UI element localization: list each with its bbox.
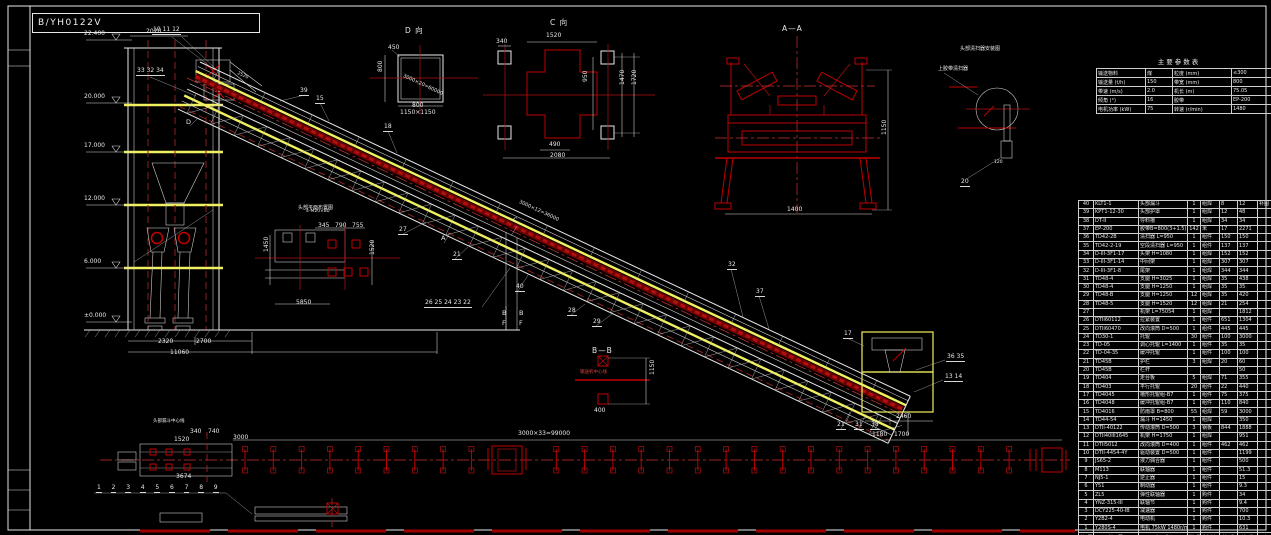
bom-cell: 13 <box>1079 425 1094 433</box>
bom-cell: 35 <box>1220 292 1238 300</box>
bom-cell: 844 <box>1220 425 1238 433</box>
part-number-callout: 8 <box>198 485 204 493</box>
callout-label: 21 <box>836 422 846 430</box>
bom-cell <box>1258 433 1271 441</box>
bom-cell <box>1220 308 1238 316</box>
bom-cell: 1 <box>1188 350 1201 358</box>
bom-cell <box>1258 458 1271 466</box>
bom-cell: 24 <box>1079 333 1094 341</box>
bom-cell: 1 <box>1188 474 1201 482</box>
bom-cell: Y2B2-4 <box>1094 516 1139 524</box>
dim-label: 头部漏斗中心线 <box>153 420 185 425</box>
bom-cell: 1 <box>1188 308 1201 316</box>
elevation-label: 6.000 <box>84 259 101 265</box>
bom-row: 7NJ5-1逆止器1组件15 <box>1079 474 1271 482</box>
inclined-conveyor <box>173 60 914 446</box>
bom-cell: 防雨罩 B=800 <box>1139 408 1188 416</box>
bom-cell <box>1258 491 1271 499</box>
bom-cell: 137 <box>1220 242 1238 250</box>
bom-cell: 700 <box>1238 507 1258 515</box>
bom-cell: 组焊 <box>1201 292 1220 300</box>
param-cell: EP-200 <box>1232 96 1271 105</box>
bom-cell: 1 <box>1188 217 1201 225</box>
param-cell: 2.0 <box>1146 87 1173 96</box>
bom-cell: DTII60470 <box>1094 325 1139 333</box>
bom-cell: 12 <box>1079 433 1094 441</box>
bom-cell: ZL5 <box>1094 491 1139 499</box>
bom-cell: 150 <box>1238 234 1258 242</box>
bom-cell: D-III-3F1-8 <box>1094 267 1139 275</box>
callout-label: 15 <box>315 96 325 104</box>
bom-cell <box>1258 416 1271 424</box>
bom-cell <box>1258 449 1271 457</box>
bom-cell: 组焊 <box>1201 308 1220 316</box>
bom-cell: 头部漏斗 <box>1139 201 1188 209</box>
param-cell: 电机功率 (kW) <box>1097 105 1146 114</box>
bom-cell: 355 <box>1238 375 1258 383</box>
callout-label: 31 <box>854 422 864 430</box>
callout-label: 13 14 <box>944 374 963 382</box>
bom-cell <box>1220 416 1238 424</box>
bom-cell: 护栏 <box>1139 358 1188 366</box>
bom-cell: 59 <box>1220 408 1238 416</box>
bom-cell: 米 <box>1201 225 1220 233</box>
bom-cell: 组焊 <box>1201 358 1220 366</box>
bom-cell: JS65-2 <box>1094 458 1139 466</box>
bom-cell: TD48-4 <box>1094 283 1139 291</box>
bom-cell <box>1258 275 1271 283</box>
bom-cell: 631 <box>1238 524 1258 532</box>
bom-cell: 尾架 <box>1139 267 1188 275</box>
part-number-callout: 5 <box>154 485 160 493</box>
dim-label: 400 <box>594 408 605 414</box>
bom-cell: 3 <box>1079 507 1094 515</box>
bom-cell: 组件 <box>1201 242 1220 250</box>
bom-cell: 1 <box>1188 400 1201 408</box>
bom-cell: 5 <box>1079 491 1094 499</box>
bom-row: 31TD48-4支腿 H=30251组焊35438 <box>1079 275 1271 283</box>
bom-cell: TD4045 <box>1094 391 1139 399</box>
bom-cell: 100 <box>1220 350 1238 358</box>
bom-row: 13DTII-40122传动滚筒 D=5003钢板8441888 <box>1079 425 1271 433</box>
param-cell: 75 <box>1146 105 1173 114</box>
bom-cell: 平行托辊 <box>1139 383 1188 391</box>
bom-cell: 头架 H=1080 <box>1139 250 1188 258</box>
param-cell: 胶带 <box>1173 96 1232 105</box>
bom-cell: 钢板 <box>1201 425 1220 433</box>
param-cell: 带速 (m/s) <box>1097 87 1146 96</box>
bom-cell <box>1094 308 1139 316</box>
part-number-callout: 1 <box>96 485 102 493</box>
bom-cell <box>1258 466 1271 474</box>
bom-cell: 12 <box>1220 209 1238 217</box>
bom-cell: 29 <box>1079 292 1094 300</box>
bom-cell: 组件 <box>1201 383 1220 391</box>
part-number-callout: 4 <box>140 485 146 493</box>
bom-cell: DT-II <box>1094 217 1139 225</box>
bom-cell: TD45B <box>1094 358 1139 366</box>
param-cell: 带宽 (mm) <box>1173 78 1232 87</box>
a-a-section <box>715 36 892 214</box>
bom-cell: 3000 <box>1238 333 1258 341</box>
dim-label: 1520 <box>546 33 561 39</box>
d-view <box>370 45 478 115</box>
bom-cell: 胶带B=800(3+1.5) <box>1139 225 1188 233</box>
param-cell: 800 <box>1232 78 1271 87</box>
bom-cell: KPT1-12-30 <box>1094 209 1139 217</box>
bom-cell: 1 <box>1188 449 1201 457</box>
bom-cell: D-III-3F1-14 <box>1094 259 1139 267</box>
bom-cell: 375 <box>1238 391 1258 399</box>
bom-cell: 支腿 H=1520 <box>1139 300 1188 308</box>
bom-cell: 344 <box>1220 267 1238 275</box>
bom-row: 32D-III-3F1-8尾架1组焊344344 <box>1079 267 1271 275</box>
callout-leaders <box>94 37 945 514</box>
bom-cell: 逆止器 <box>1139 474 1188 482</box>
bom-cell: 16 <box>1079 400 1094 408</box>
bom-row: 36TD42-2B清扫器 L=9501组件150150 <box>1079 234 1271 242</box>
part-number-callout: 7 <box>184 485 190 493</box>
bom-cell <box>1258 524 1271 532</box>
elevation-label: 22.400 <box>84 31 105 37</box>
bom-cell: 40 <box>1079 201 1094 209</box>
bom-cell: 19 <box>1079 375 1094 383</box>
bom-cell <box>1220 449 1238 457</box>
bom-row: 30TD48-4支腿 H=12501组焊3535 <box>1079 283 1271 291</box>
bom-cell: 1 <box>1188 516 1201 524</box>
callout-label: 40 <box>515 284 525 292</box>
bom-cell <box>1258 250 1271 258</box>
bom-cell: 1 <box>1188 234 1201 242</box>
bom-cell: 34 <box>1079 250 1094 258</box>
bom-cell: 440 <box>1238 383 1258 391</box>
bom-cell: TD48-B <box>1094 292 1139 300</box>
bom-cell: TD404 <box>1094 375 1139 383</box>
dim-label: 950 <box>583 71 589 82</box>
bom-cell <box>1258 391 1271 399</box>
dim-label: 1520 <box>370 240 376 255</box>
dim-label: 120 <box>994 161 1003 166</box>
bom-cell: 137 <box>1238 242 1258 250</box>
bom-cell: 组件 <box>1201 474 1220 482</box>
bom-cell: 12 <box>1188 292 1201 300</box>
bom-row: 3DCY225-40-IB减速器1购件700 <box>1079 507 1271 515</box>
callout-label: 28 <box>567 308 577 316</box>
bom-cell: 组件 <box>1201 458 1220 466</box>
bom-cell <box>1258 217 1271 225</box>
bom-cell: TD45B <box>1094 366 1139 374</box>
bom-cell: 导料槽 <box>1139 217 1188 225</box>
tail-plan-detail <box>160 498 347 530</box>
dim-label: 2700 <box>196 339 211 345</box>
bom-cell: DTII5012 <box>1094 441 1139 449</box>
bom-cell: TD42-2B <box>1094 234 1139 242</box>
c-view <box>483 42 655 158</box>
bom-cell <box>1220 466 1238 474</box>
param-cell: 倾角 (°) <box>1097 96 1146 105</box>
elevation-label: 20.000 <box>84 94 105 100</box>
callout-label: 37 <box>755 289 765 297</box>
drawing-number: B/YH0122V <box>33 18 102 28</box>
bom-cell: TD30-1 <box>1094 333 1139 341</box>
bom-cell: 100 <box>1238 350 1258 358</box>
bom-cell: 18 <box>1079 383 1094 391</box>
bom-cell: 34 <box>1238 217 1258 225</box>
bom-cell: 445 <box>1238 325 1258 333</box>
dim-label: 2080 <box>550 153 565 159</box>
view-title: B—B <box>592 347 613 355</box>
callout-label: 33 32 34 <box>136 68 165 76</box>
dim-label: 4-M20×80 <box>306 210 330 215</box>
bom-cell: 支腿 H=1250 <box>1139 292 1188 300</box>
bom-cell <box>1258 283 1271 291</box>
bom-cell: 9.3 <box>1238 483 1258 491</box>
bom-cell: 307 <box>1238 259 1258 267</box>
bom-cell: 1812 <box>1238 308 1258 316</box>
bom-cell: 31 <box>1079 275 1094 283</box>
dim-label: 1470 <box>620 70 626 85</box>
bom-cell: 34 <box>1238 491 1258 499</box>
bom-cell: 购件 <box>1201 491 1220 499</box>
bom-cell: 组焊 <box>1201 300 1220 308</box>
dim-label: 340 <box>496 39 507 45</box>
bom-cell: 联轴器 <box>1139 466 1188 474</box>
bom-cell: 75 <box>1220 391 1238 399</box>
part-number-callout: 3 <box>125 485 131 493</box>
bom-cell: Y51 <box>1094 483 1139 491</box>
bom-cell: 14 <box>1079 416 1094 424</box>
elevation-label: 12.000 <box>84 196 105 202</box>
bom-row: 11DTII5012改向滚筒 D=4001组件462462 <box>1079 441 1271 449</box>
param-cell: 75.05 <box>1232 87 1271 96</box>
bom-cell: 1 <box>1188 416 1201 424</box>
bom-row: 12DTII40III1645机架 H=17501组焊951 <box>1079 433 1271 441</box>
bom-cell: 20 <box>1079 366 1094 374</box>
dim-label: 输送机中心线 <box>580 371 607 376</box>
bom-cell: M113 <box>1094 466 1139 474</box>
param-cell: 输送量 (t/h) <box>1097 78 1146 87</box>
dim-label: 2020 <box>146 29 161 35</box>
bom-cell: 1888 <box>1238 425 1258 433</box>
bom-cell: 12 <box>1188 300 1201 308</box>
bom-cell <box>1258 358 1271 366</box>
bom-cell: 电动机 <box>1139 516 1188 524</box>
bom-row: 33D-III-3F1-14中间架1组焊307307 <box>1079 259 1271 267</box>
dim-label: 1520 <box>174 437 189 443</box>
bom-cell: 1 <box>1188 466 1201 474</box>
bom-cell: TD-05 <box>1094 342 1139 350</box>
bom-cell: 驱动装置 D=500 <box>1139 449 1188 457</box>
bom-cell: 组焊 <box>1201 408 1220 416</box>
head-plan-view <box>255 225 400 304</box>
dim-label: 1720 <box>632 70 638 85</box>
dim-label: 1400 <box>787 207 802 213</box>
bom-cell: 1 <box>1188 391 1201 399</box>
bom-row: 24TD30-1托辊30组件1003000 <box>1079 333 1271 341</box>
dim-label: 800 <box>378 61 384 72</box>
bom-cell: 1 <box>1188 325 1201 333</box>
bom-cell: 32 <box>1079 267 1094 275</box>
bom-row: 4YNZ-315-III联轴节1购件9.4 <box>1079 499 1271 507</box>
dim-label: 1150×1150 <box>400 110 436 116</box>
bom-cell <box>1220 491 1238 499</box>
bom-cell: 50 <box>1238 366 1258 374</box>
param-cell: 粒度 (mm) <box>1173 69 1232 78</box>
bom-cell: DTII60112 <box>1094 317 1139 325</box>
bom-cell: 组件 <box>1201 441 1220 449</box>
bom-cell <box>1258 292 1271 300</box>
bom-row: 8M113联轴器1组件51.3 <box>1079 466 1271 474</box>
bom-row: 17TD4045槽形托辊组-B71组件75375 <box>1079 391 1271 399</box>
callout-label: 17 <box>843 331 853 339</box>
parameters-table-title: 主要参数表 <box>1096 56 1262 66</box>
bom-cell: 150 <box>1220 234 1238 242</box>
bom-row: 34D-III-3F1-17头架 H=10801组焊152152 <box>1079 250 1271 258</box>
dim-label: 3674 <box>176 474 191 480</box>
bom-cell: 3 <box>1188 425 1201 433</box>
bom-row: 25DTII60470改向滚筒 D=5001组件445445 <box>1079 325 1271 333</box>
bom-cell: 1 <box>1188 201 1201 209</box>
bom-cell: 拉紧装置 <box>1139 317 1188 325</box>
dim-label: 755 <box>352 223 363 229</box>
bom-cell <box>1258 516 1271 524</box>
bom-cell: TD403 <box>1094 383 1139 391</box>
dim-label: D <box>186 119 191 126</box>
bom-cell: 8 <box>1079 466 1094 474</box>
bom-cell: 槽形托辊组-B7 <box>1139 391 1188 399</box>
bom-cell: 37 <box>1079 225 1094 233</box>
callout-label: 38 <box>870 422 880 430</box>
dim-label: B <box>502 310 506 317</box>
bom-cell: 组焊 <box>1201 217 1220 225</box>
bom-cell <box>1258 408 1271 416</box>
bom-cell: 2 <box>1079 516 1094 524</box>
bom-cell: 7 <box>1079 474 1094 482</box>
pulley-detail <box>944 73 1030 178</box>
bom-cell: TD42-2-19 <box>1094 242 1139 250</box>
bom-cell: 35 <box>1238 342 1258 350</box>
bom-cell: 传动滚筒 D=500 <box>1139 425 1188 433</box>
bom-cell: 35 <box>1220 342 1238 350</box>
callout-label: 29 <box>592 319 602 327</box>
bom-cell: 3 <box>1188 358 1201 366</box>
bom-cell: 5 <box>1188 375 1201 383</box>
bom-row: 38DT-II导料槽1组焊3434 <box>1079 217 1271 225</box>
bom-cell: 307 <box>1220 259 1238 267</box>
elevation-label: ±0.000 <box>84 313 106 319</box>
bom-cell: 1 <box>1188 259 1201 267</box>
bom-cell: 组件 <box>1201 234 1220 242</box>
dim-label: 头部清扫器安装图 <box>960 47 1000 52</box>
callout-label: 20 <box>960 179 970 187</box>
param-cell: 煤 <box>1146 69 1173 78</box>
bom-cell <box>1258 342 1271 350</box>
bom-cell <box>1258 425 1271 433</box>
bom-cell: 254 <box>1238 300 1258 308</box>
bom-cell: 1 <box>1188 283 1201 291</box>
bom-cell: 组焊 <box>1201 375 1220 383</box>
b-b-section <box>575 356 650 404</box>
bom-cell: 联轴节 <box>1139 499 1188 507</box>
bom-cell: 60 <box>1238 358 1258 366</box>
bom-cell: 1 <box>1188 507 1201 515</box>
bom-cell: 1 <box>1079 524 1094 532</box>
bom-cell: 空段清扫器 L=950 <box>1139 242 1188 250</box>
bom-cell <box>1258 209 1271 217</box>
callout-label: 39 <box>299 88 309 96</box>
param-cell: 150 <box>1146 78 1173 87</box>
bom-cell: 弹性联轴器 <box>1139 491 1188 499</box>
bom-cell: 组焊 <box>1201 433 1220 441</box>
bom-cell: 100 <box>1220 333 1238 341</box>
bom-cell <box>1258 499 1271 507</box>
bom-row: 20TD45B栏杆50 <box>1079 366 1271 374</box>
bom-row: 1Y280S-4电机 75kW 1480r/min1购件631 <box>1079 524 1271 532</box>
bom-cell: DCY225-40-IB <box>1094 507 1139 515</box>
bom-cell: 35 <box>1220 283 1238 291</box>
bom-cell: 30 <box>1188 333 1201 341</box>
bom-cell: 1 <box>1188 441 1201 449</box>
bom-cell: 组件 <box>1201 333 1220 341</box>
bom-cell: 缓冲托辊组-B7 <box>1139 400 1188 408</box>
bom-cell: 9 <box>1079 458 1094 466</box>
bom-row: 21TD45B护栏3组焊2060 <box>1079 358 1271 366</box>
bom-cell <box>1220 507 1238 515</box>
bom-cell: 10 <box>1079 449 1094 457</box>
bom-row: 37EP-200胶带B=800(3+1.5)142米172271 <box>1079 225 1271 233</box>
bom-cell: DTII40III1645 <box>1094 433 1139 441</box>
bom-cell: 15 <box>1079 408 1094 416</box>
view-title: D 向 <box>405 27 424 35</box>
bom-cell: TD48-5 <box>1094 300 1139 308</box>
bom-cell: Y280S-4 <box>1094 524 1139 532</box>
bom-cell <box>1258 483 1271 491</box>
elevation-label: 17.000 <box>84 143 105 149</box>
bom-cell: 2271 <box>1238 225 1258 233</box>
bom-cell <box>1220 458 1238 466</box>
bom-cell: 改向滚筒 D=500 <box>1139 325 1188 333</box>
bom-cell: 15 <box>1238 474 1258 482</box>
bom-cell: 38 <box>1079 217 1094 225</box>
bom-cell: 20 <box>1220 358 1238 366</box>
bom-cell <box>1258 300 1271 308</box>
bom-cell: 1 <box>1188 433 1201 441</box>
dim-label: A <box>441 235 445 242</box>
bom-cell: 35 <box>1238 283 1258 291</box>
bom-cell: TD4048 <box>1094 400 1139 408</box>
bom-cell <box>1258 383 1271 391</box>
bom-cell: 48 <box>1238 209 1258 217</box>
bom-cell: 152 <box>1220 250 1238 258</box>
bom-row: 19TD404走台板5组焊71355 <box>1079 375 1271 383</box>
bom-cell: DTII-40122 <box>1094 425 1139 433</box>
dim-label: 5850 <box>296 300 311 306</box>
bom-row: 27机架 L=750541组焊1812 <box>1079 308 1271 316</box>
param-cell: 1480 <box>1232 105 1271 114</box>
bom-cell: 清扫器 L=950 <box>1139 234 1188 242</box>
bom-cell: 30 <box>1079 283 1094 291</box>
bom-cell <box>1258 225 1271 233</box>
bom-cell: 35 <box>1079 242 1094 250</box>
bom-cell: 组焊 <box>1201 250 1220 258</box>
bom-cell <box>1258 507 1271 515</box>
bom-cell <box>1220 516 1238 524</box>
callout-label: 36 35 <box>946 354 965 362</box>
dim-label: 11060 <box>170 350 189 356</box>
callout-label: 27 <box>398 227 408 235</box>
bom-cell <box>1220 433 1238 441</box>
part-number-callout: 6 <box>169 485 175 493</box>
